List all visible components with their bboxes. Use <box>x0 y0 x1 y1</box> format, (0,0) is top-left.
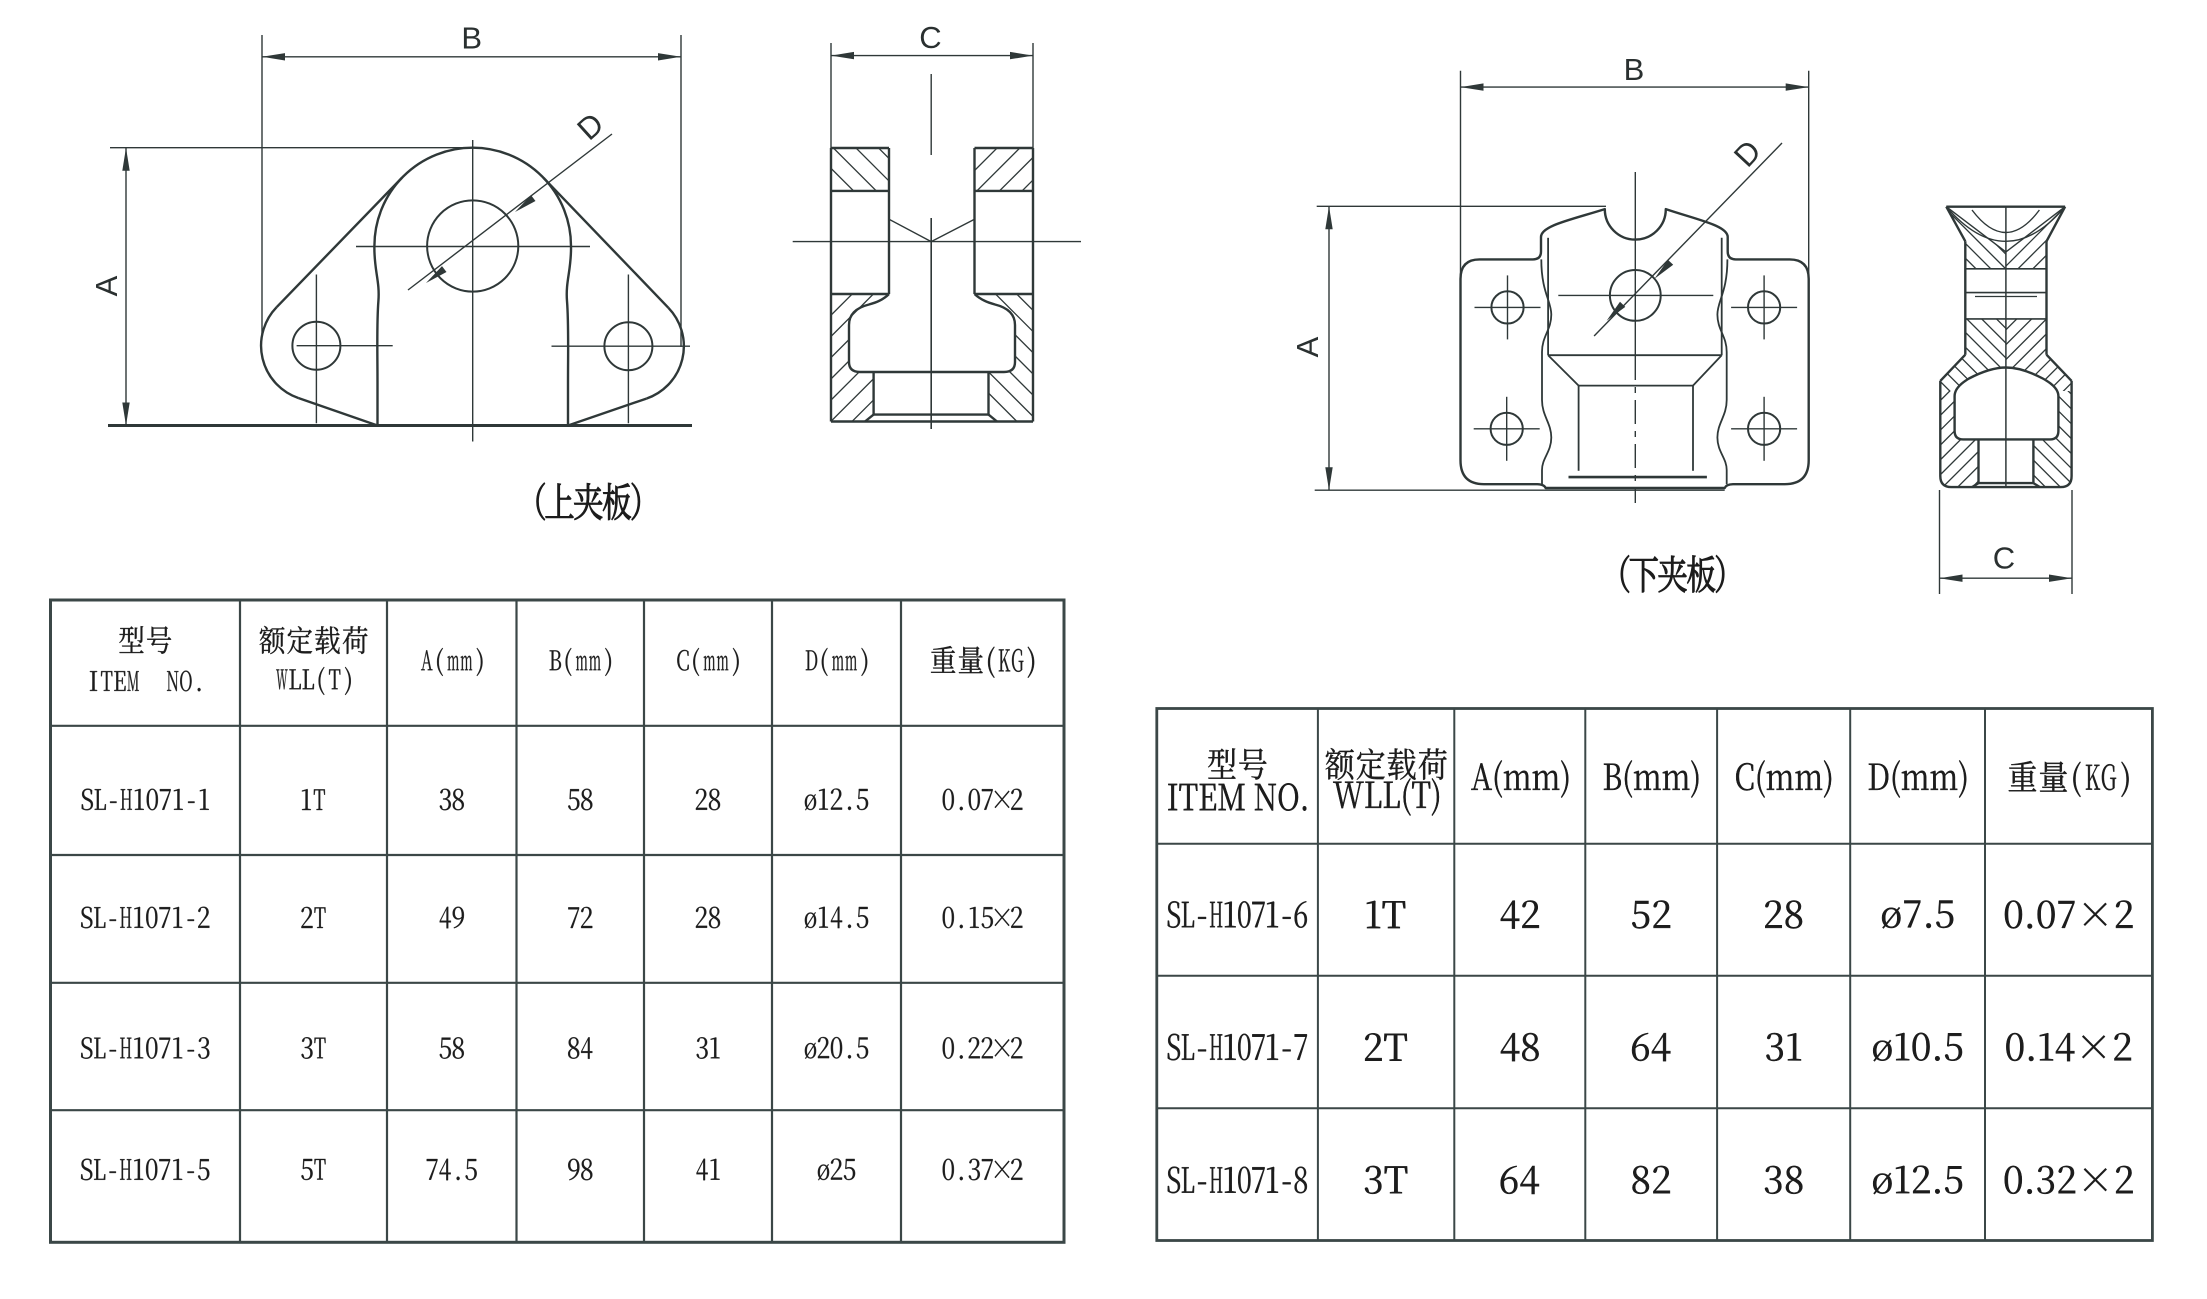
svg-text:B: B <box>1624 52 1645 87</box>
svg-text:B: B <box>461 20 482 55</box>
svg-text:A: A <box>1290 336 1325 357</box>
svg-text:C: C <box>1993 541 2015 576</box>
svg-text:C: C <box>919 20 941 55</box>
svg-text:D: D <box>1727 133 1768 173</box>
svg-text:D: D <box>570 106 610 147</box>
svg-text:A: A <box>89 275 124 296</box>
